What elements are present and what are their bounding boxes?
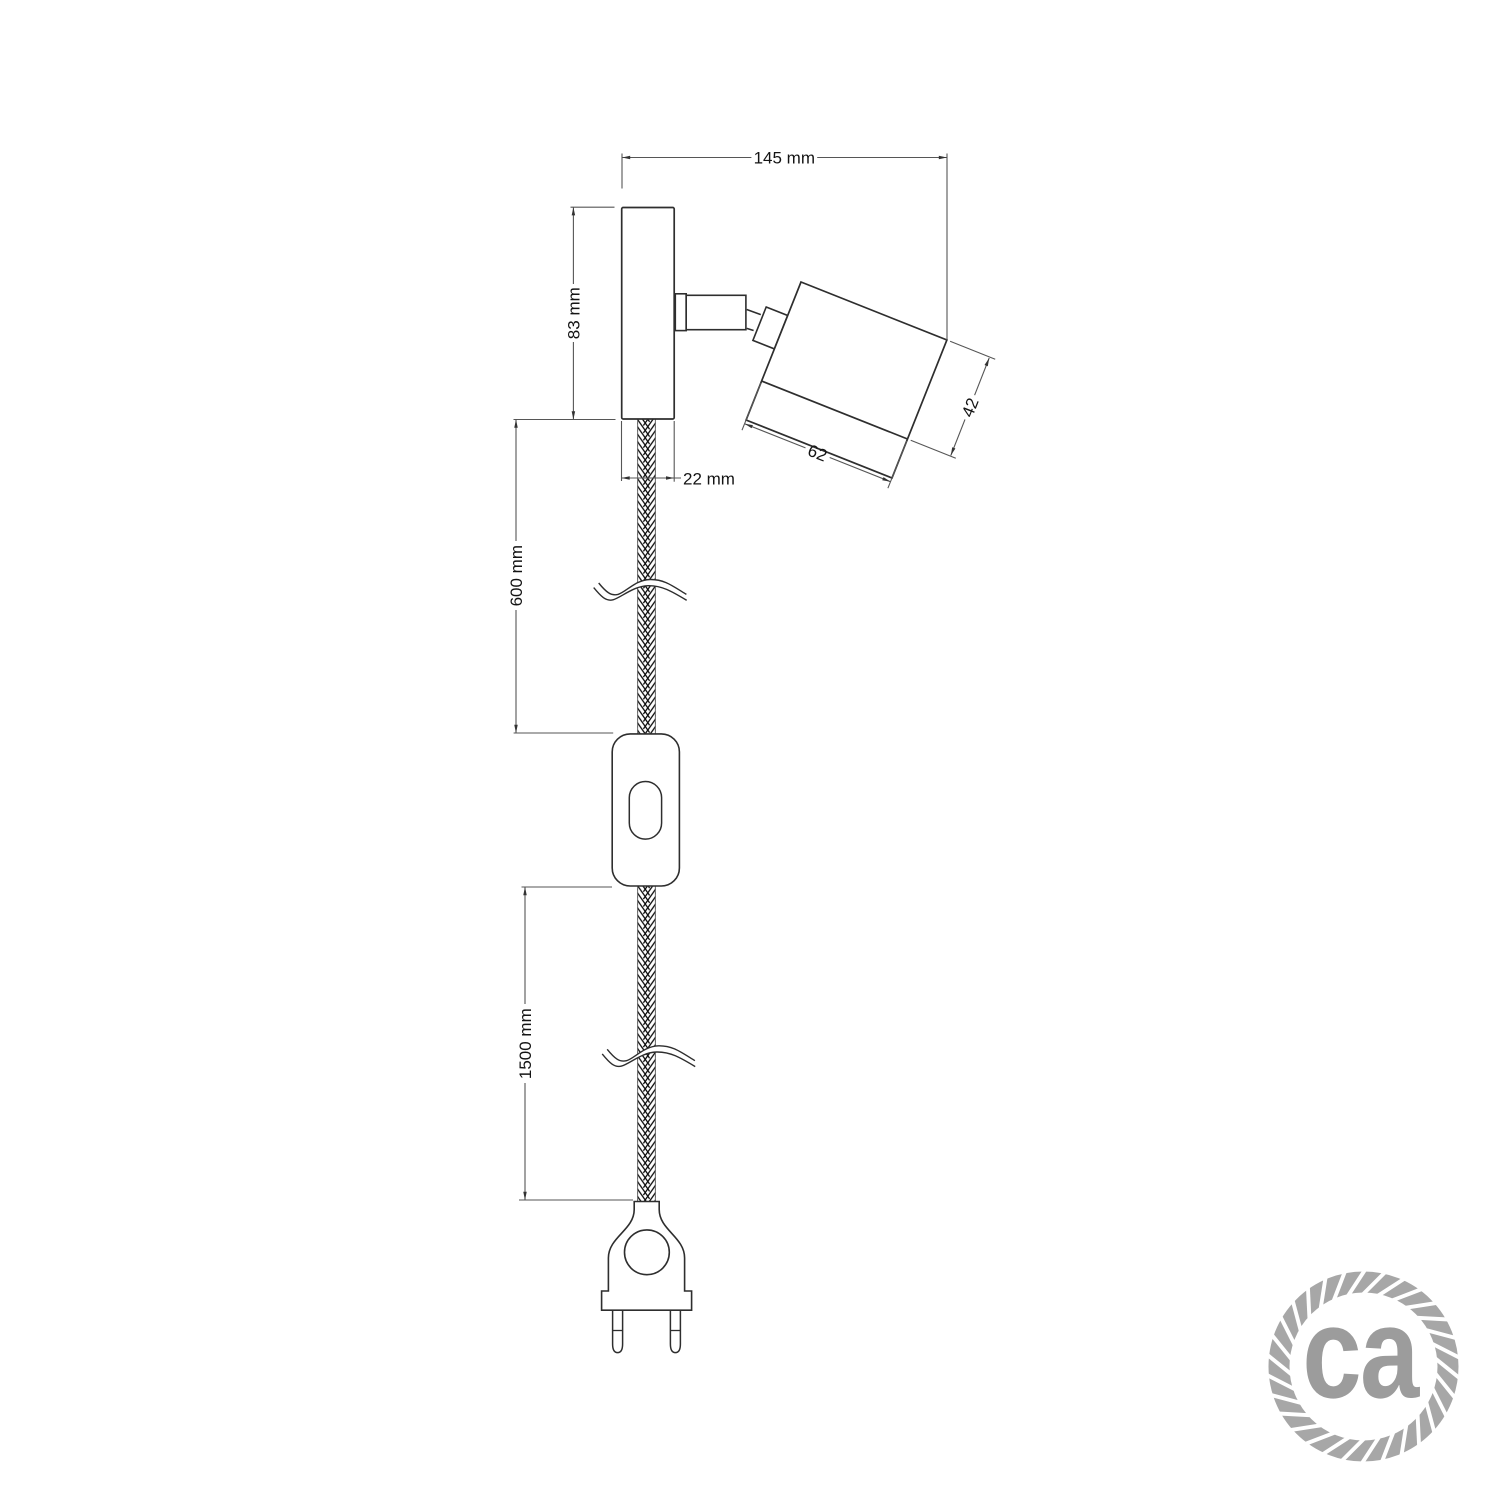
svg-text:ca: ca — [1302, 1280, 1420, 1425]
svg-text:83 mm: 83 mm — [565, 287, 584, 339]
svg-text:145 mm: 145 mm — [754, 149, 815, 168]
svg-text:600 mm: 600 mm — [507, 545, 526, 606]
svg-text:22 mm: 22 mm — [683, 469, 735, 488]
svg-text:1500 mm: 1500 mm — [516, 1008, 535, 1079]
